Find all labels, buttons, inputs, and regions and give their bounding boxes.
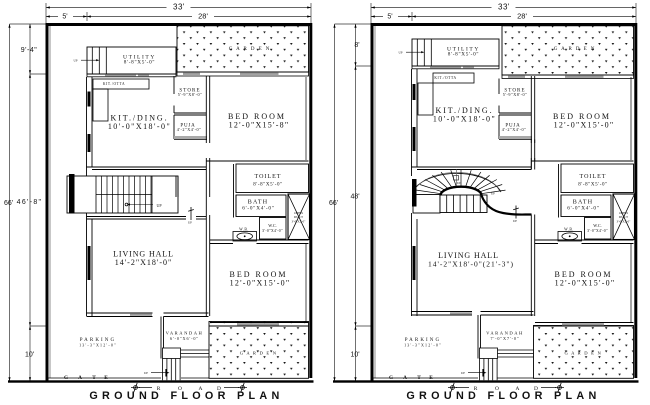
svg-text:A: A	[403, 375, 407, 381]
svg-text:12'-0"X15'-0": 12'-0"X15'-0"	[555, 278, 616, 287]
svg-text:G A R D E N: G A R D E N	[229, 47, 271, 52]
svg-text:UP: UP	[491, 192, 495, 196]
svg-text:G A R D E N: G A R D E N	[554, 47, 596, 52]
svg-text:T: T	[417, 375, 421, 381]
svg-text:46'-8": 46'-8"	[17, 199, 43, 206]
svg-text:A: A	[78, 375, 82, 381]
svg-text:28': 28'	[198, 12, 208, 21]
svg-text:E: E	[429, 375, 433, 381]
svg-text:W.B.: W.B.	[564, 227, 574, 231]
svg-text:66': 66'	[329, 200, 338, 207]
svg-text:5'-9"X8'-0": 5'-9"X8'-0"	[178, 92, 203, 97]
svg-text:10'-0"X18'-0": 10'-0"X18'-0"	[433, 115, 496, 124]
svg-text:6'-0"X6'-0": 6'-0"X6'-0"	[170, 336, 199, 341]
svg-text:14'-2"X18'-0": 14'-2"X18'-0"	[115, 258, 173, 267]
svg-text:10'-0"X18'-0": 10'-0"X18'-0"	[108, 122, 171, 131]
svg-text:UP: UP	[457, 181, 461, 185]
svg-text:33': 33'	[173, 3, 185, 12]
svg-text:GROUND FLOOR PLAN: GROUND FLOOR PLAN	[89, 390, 283, 400]
svg-text:G: G	[64, 375, 68, 381]
svg-text:6'-0"X4'-0": 6'-0"X4'-0"	[567, 206, 599, 212]
svg-text:VARANDAH: VARANDAH	[486, 331, 524, 336]
svg-text:3'-0"X2'-0": 3'-0"X2'-0"	[292, 220, 306, 224]
svg-text:T: T	[92, 375, 96, 381]
svg-text:4'-2"X4'-0": 4'-2"X4'-0"	[177, 127, 202, 132]
svg-text:VARANDAH: VARANDAH	[166, 331, 204, 336]
svg-text:TOILET: TOILET	[255, 174, 282, 180]
svg-text:4'-2"X4'-0": 4'-2"X4'-0"	[502, 127, 527, 132]
svg-text:7'-0"X7'-0": 7'-0"X7'-0"	[490, 336, 519, 341]
svg-text:BATH: BATH	[248, 199, 268, 205]
svg-text:6'-0"X4'-0": 6'-0"X4'-0"	[242, 206, 274, 212]
svg-text:5': 5'	[387, 14, 392, 21]
svg-text:10': 10'	[25, 352, 34, 359]
svg-text:12'-0"X15'-8": 12'-0"X15'-8"	[229, 121, 290, 130]
svg-text:13'-3"X12'-0": 13'-3"X12'-0"	[79, 343, 117, 348]
svg-text:W.B.: W.B.	[239, 227, 249, 231]
svg-text:14'-2"X18'-0"(21'-3"): 14'-2"X18'-0"(21'-3")	[428, 260, 514, 269]
svg-text:G A R D E N: G A R D E N	[240, 351, 278, 356]
svg-text:BATH: BATH	[573, 199, 593, 205]
svg-text:9'-4": 9'-4"	[21, 47, 37, 54]
svg-text:KIT./OTTA: KIT./OTTA	[103, 82, 125, 86]
svg-text:28': 28'	[517, 12, 527, 21]
svg-text:UP: UP	[513, 219, 517, 223]
svg-text:8'-8"X5'-0": 8'-8"X5'-0"	[448, 52, 479, 58]
svg-text:8'-8"X5'-0": 8'-8"X5'-0"	[253, 182, 282, 187]
svg-text:12'-0"X15'-0": 12'-0"X15'-0"	[554, 121, 615, 130]
svg-text:UP: UP	[144, 371, 148, 375]
svg-text:G A R D E N: G A R D E N	[564, 351, 602, 356]
svg-text:G: G	[389, 375, 393, 381]
svg-text:10': 10'	[350, 352, 359, 359]
svg-text:5'-9"X8'-0": 5'-9"X8'-0"	[503, 92, 528, 97]
svg-text:GROUND FLOOR PLAN: GROUND FLOOR PLAN	[406, 390, 600, 400]
svg-text:8': 8'	[354, 42, 359, 49]
svg-text:66': 66'	[4, 200, 13, 207]
svg-text:3'-0"X4'-0": 3'-0"X4'-0"	[262, 229, 283, 233]
svg-text:12'-0"X15'-0": 12'-0"X15'-0"	[230, 278, 291, 287]
svg-text:TOILET: TOILET	[580, 174, 607, 180]
svg-text:33': 33'	[498, 3, 510, 12]
svg-text:W.C.: W.C.	[268, 223, 276, 228]
svg-text:UP: UP	[398, 51, 402, 55]
svg-text:13'-3"X12'-0": 13'-3"X12'-0"	[404, 343, 442, 348]
svg-text:8'-8"X5'-0": 8'-8"X5'-0"	[578, 182, 607, 187]
svg-text:UP: UP	[188, 221, 192, 225]
svg-text:48': 48'	[350, 194, 359, 201]
svg-text:UP: UP	[461, 371, 465, 375]
svg-text:W.C.: W.C.	[593, 223, 601, 228]
svg-text:E: E	[104, 375, 108, 381]
svg-text:3'-0"X2'-0": 3'-0"X2'-0"	[617, 220, 631, 224]
svg-text:3'-0"X4'-0": 3'-0"X4'-0"	[587, 229, 608, 233]
svg-text:KIT./OTTA: KIT./OTTA	[434, 76, 456, 80]
svg-text:UP: UP	[73, 59, 77, 63]
svg-text:UP: UP	[156, 203, 162, 208]
svg-text:8'-8"X5'-0": 8'-8"X5'-0"	[124, 60, 155, 66]
svg-text:5': 5'	[62, 14, 67, 21]
